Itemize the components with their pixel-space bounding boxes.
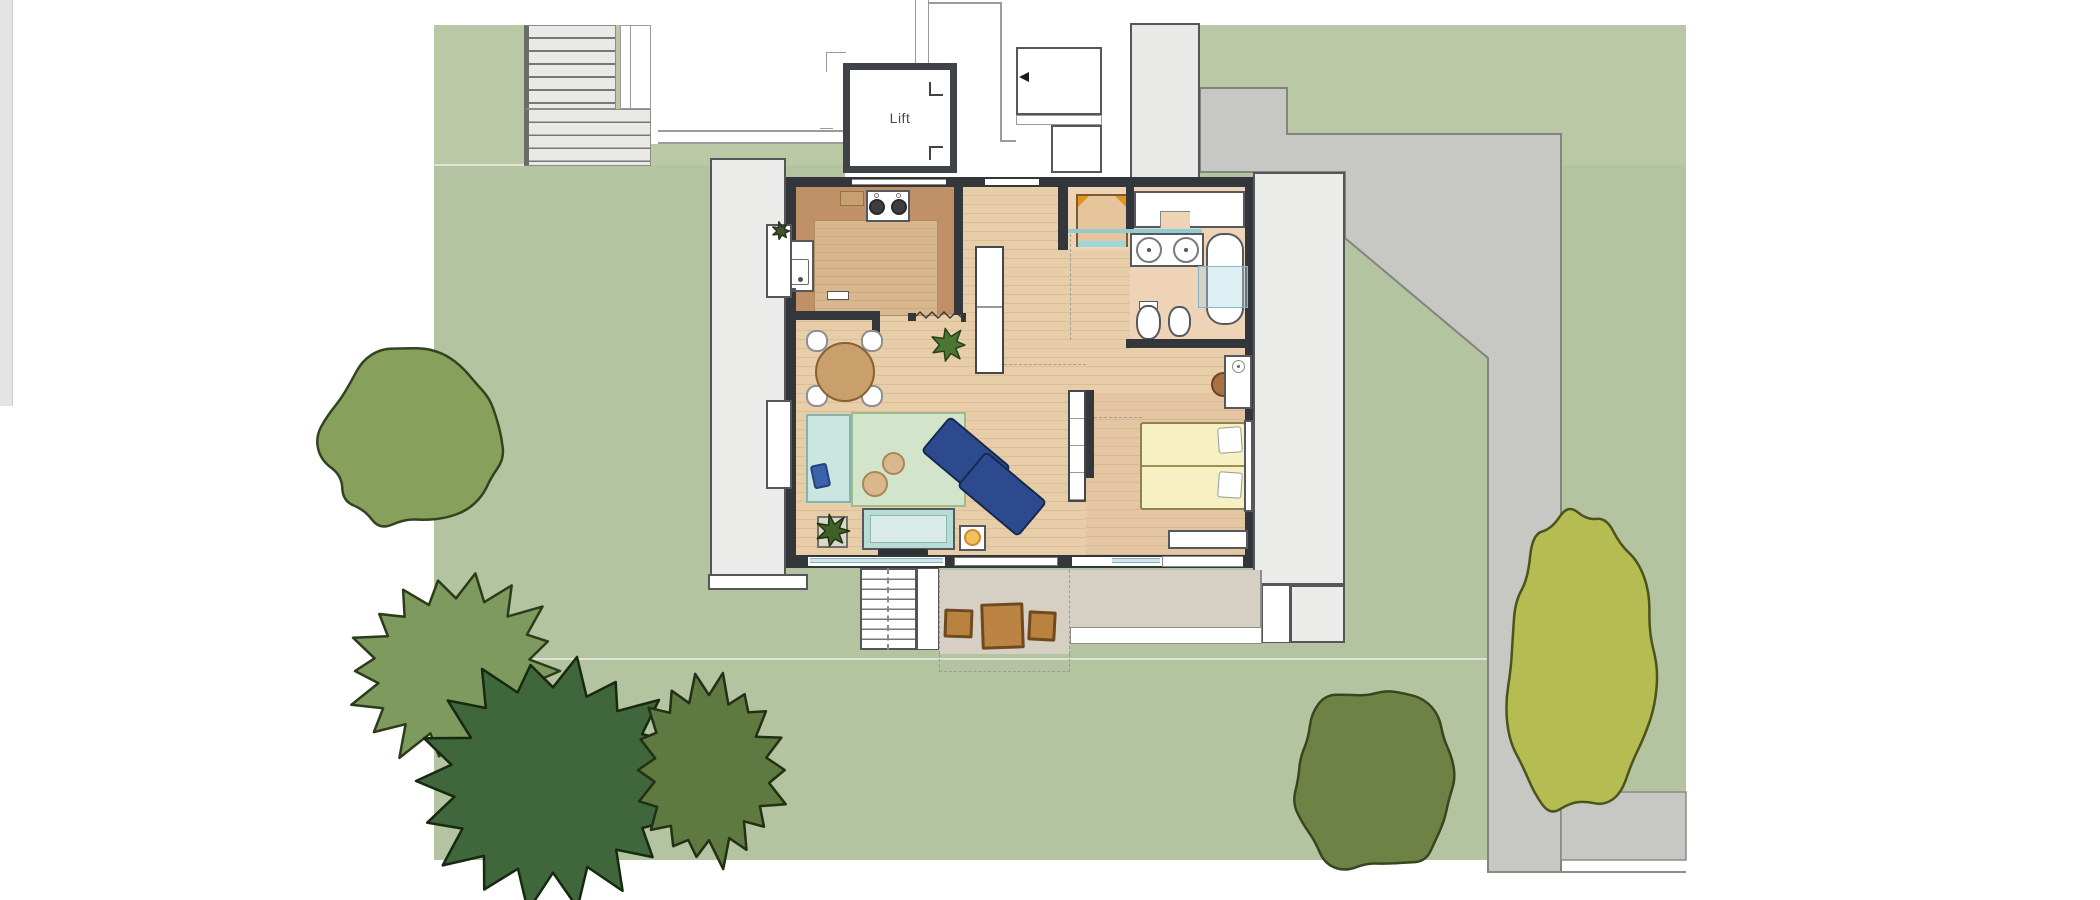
tree-round-upper-left [317, 348, 503, 526]
floor-plan-canvas: Lift [0, 0, 2100, 900]
tree-olive-tall [1506, 509, 1657, 811]
plant-kitchen-star [773, 222, 790, 240]
tree-spiky-small [638, 673, 786, 869]
sofa [922, 417, 1046, 536]
sliding-door-zigzag [914, 312, 962, 318]
plant-dining [932, 328, 965, 361]
vegetation-layer [0, 0, 2100, 900]
plant-living [817, 514, 849, 546]
tree-round-bottom [1294, 691, 1454, 869]
